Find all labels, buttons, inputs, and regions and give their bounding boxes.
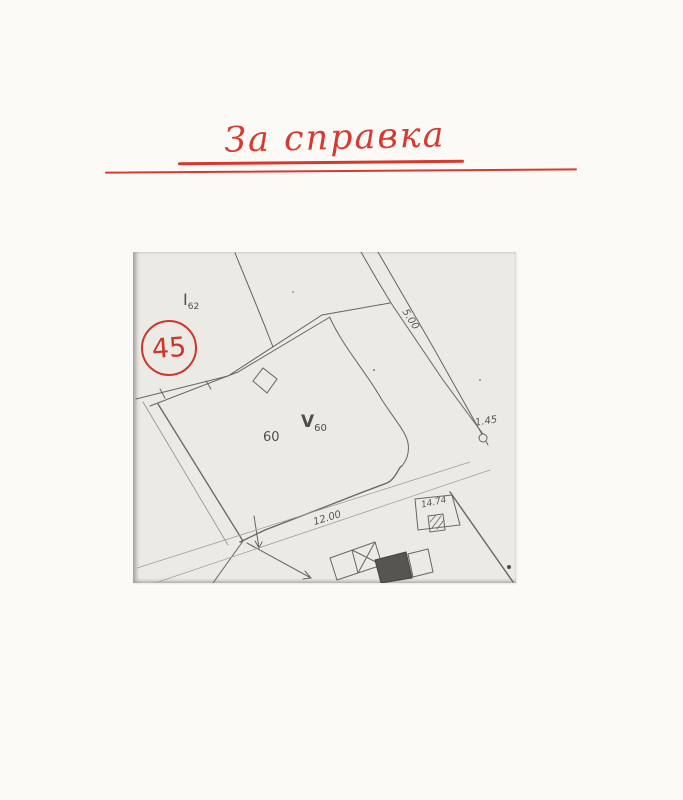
boundary-v60-bottom bbox=[240, 466, 402, 542]
label-parcel-60: 60 bbox=[263, 430, 280, 445]
speck-dot-3 bbox=[292, 291, 294, 293]
label-parcel-i62: I62 bbox=[183, 290, 199, 312]
label-parcel-60-text: 60 bbox=[263, 430, 280, 445]
survey-tick-2 bbox=[160, 389, 165, 398]
road-edge-right bbox=[378, 252, 488, 445]
boundary-right-parcel bbox=[450, 492, 513, 582]
stamp-number: 45 bbox=[151, 331, 187, 364]
divider-line-bottom bbox=[247, 543, 311, 578]
divider-arrowhead bbox=[303, 571, 311, 579]
speck-dot-2 bbox=[479, 379, 481, 381]
building-small-square bbox=[253, 368, 277, 393]
label-parcel-v60-main: V bbox=[301, 412, 314, 432]
handwritten-title-text: За справка bbox=[224, 115, 446, 160]
road-edge-left bbox=[361, 252, 483, 434]
building-filled-dark bbox=[375, 552, 412, 583]
speck-dot-1 bbox=[373, 369, 375, 371]
label-parcel-i62-sub: 62 bbox=[188, 302, 199, 312]
label-parcel-v60: V60 bbox=[301, 412, 327, 434]
page-title: За справка bbox=[174, 114, 495, 174]
boundary-v60-left-parallel bbox=[143, 402, 228, 545]
building-outline-square bbox=[408, 549, 433, 577]
building-cross-divider bbox=[352, 550, 358, 573]
street-edge-upper bbox=[137, 462, 470, 568]
building-hatched-square bbox=[428, 514, 445, 532]
label-parcel-v60-sub: 60 bbox=[314, 423, 327, 434]
cadastral-sketch-photo: 45 I62 60 V60 5.00 1.45 12.00 14.74 bbox=[133, 252, 516, 583]
boundary-v60-right bbox=[330, 318, 408, 466]
scanned-page: За справка bbox=[0, 0, 683, 800]
boundary-v60-left bbox=[158, 404, 243, 541]
boundary-parcel-i62 bbox=[235, 253, 273, 347]
survey-node-circle bbox=[479, 434, 487, 442]
corner-dot bbox=[507, 565, 511, 569]
